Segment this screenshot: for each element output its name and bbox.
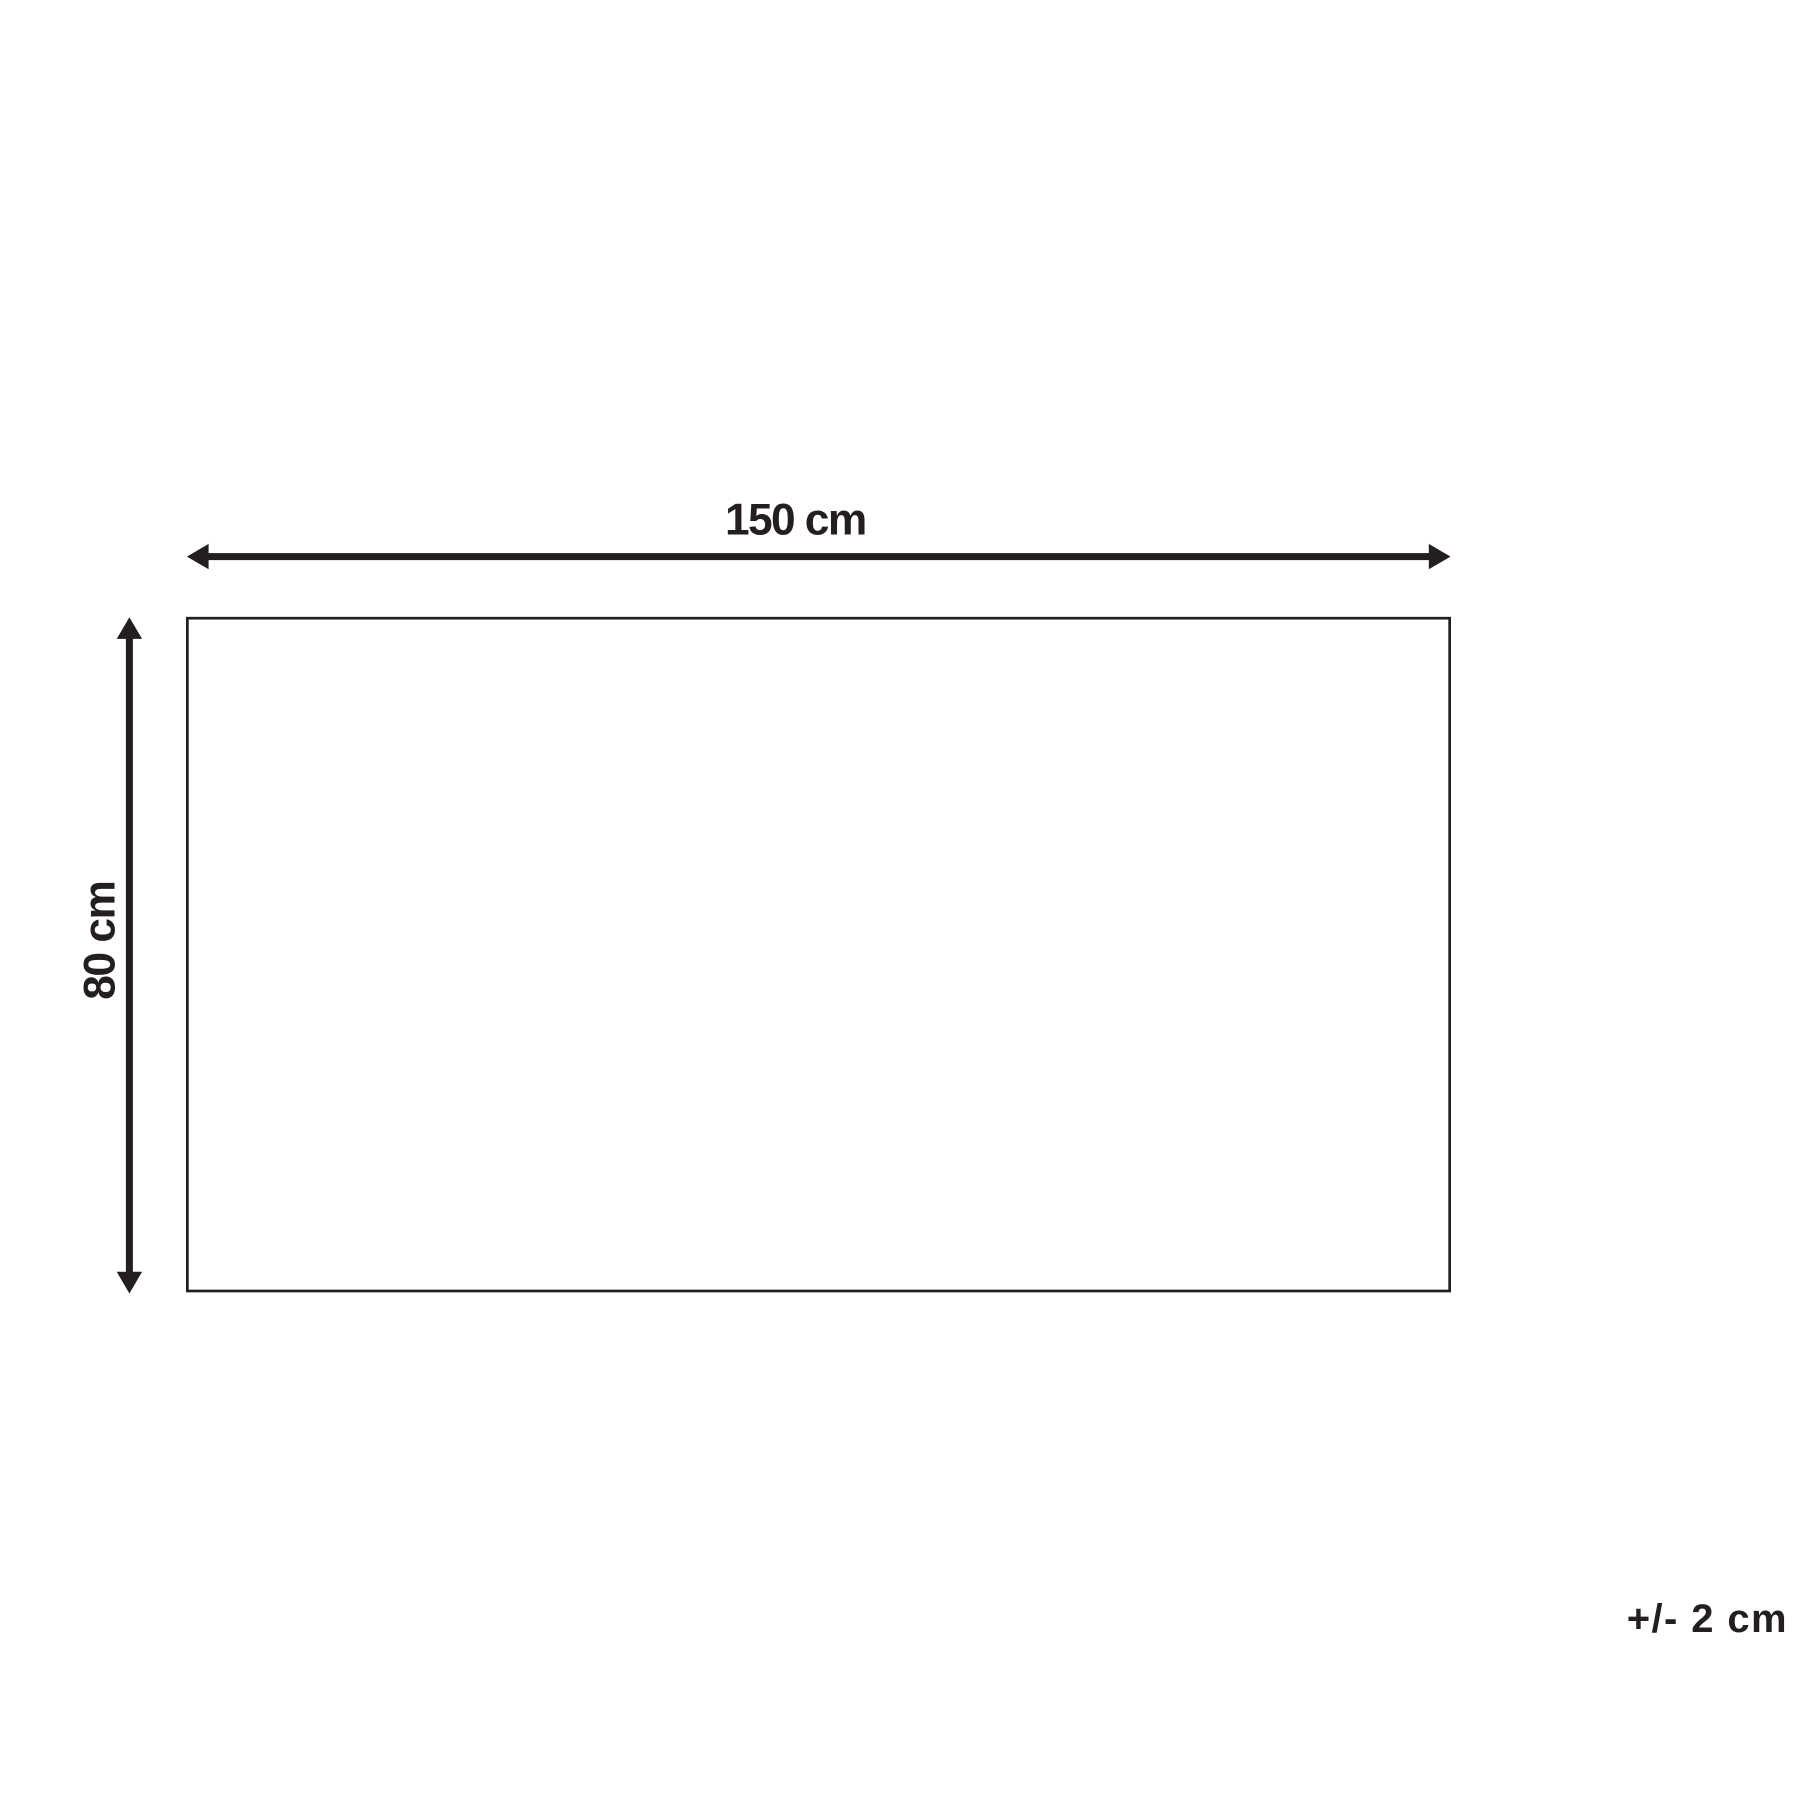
svg-text:150 cm: 150 cm (725, 496, 866, 545)
svg-text:+/- 2 cm: +/- 2 cm (1627, 1597, 1788, 1641)
svg-text:80 cm: 80 cm (75, 882, 124, 1000)
